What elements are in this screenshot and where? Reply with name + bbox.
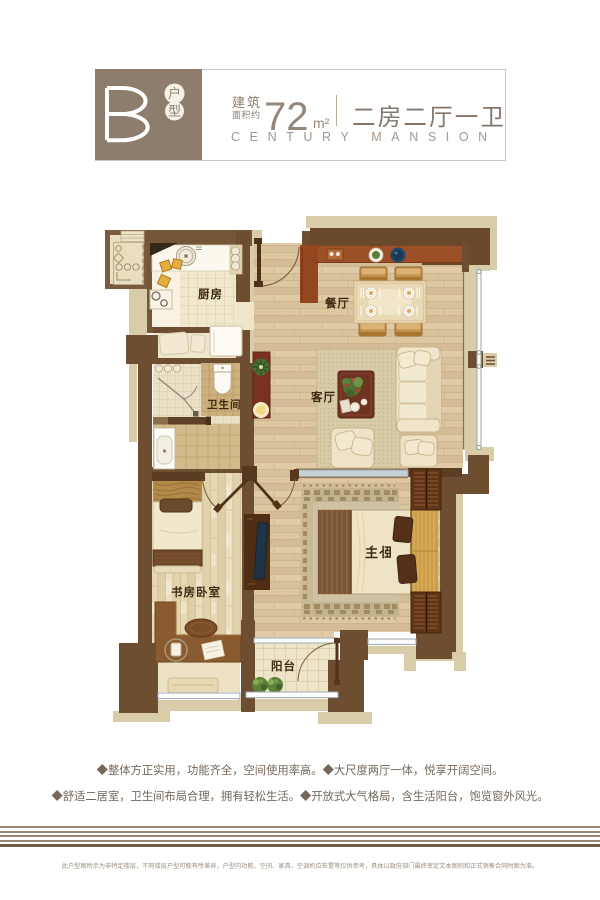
svg-text:阳台: 阳台 bbox=[271, 659, 296, 673]
svg-text:客厅: 客厅 bbox=[310, 390, 336, 404]
svg-text:书房卧室: 书房卧室 bbox=[171, 585, 221, 599]
svg-text:户: 户 bbox=[168, 86, 181, 101]
svg-text:厨房: 厨房 bbox=[198, 287, 223, 301]
svg-text:型: 型 bbox=[168, 104, 181, 119]
svg-text:餐厅: 餐厅 bbox=[324, 296, 350, 310]
svg-text:卫生间: 卫生间 bbox=[207, 398, 242, 411]
svg-text:卧主: 卧主 bbox=[364, 545, 392, 560]
